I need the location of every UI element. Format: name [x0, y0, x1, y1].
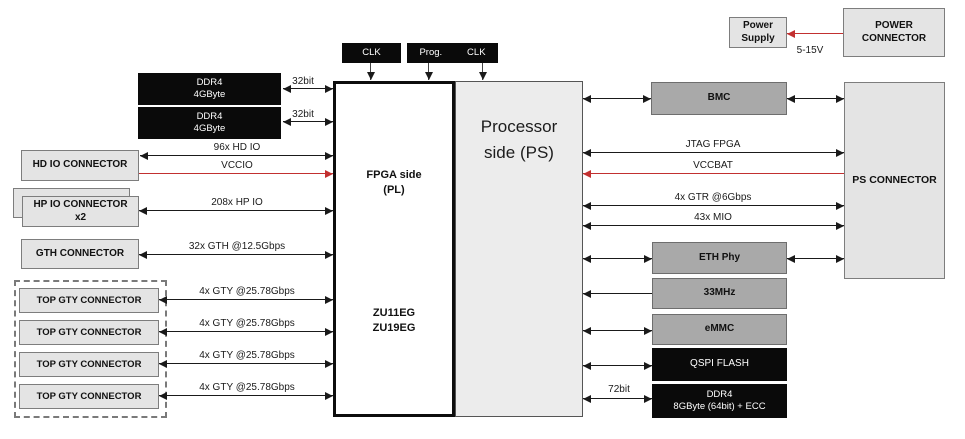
gty-arrow-2	[159, 331, 333, 332]
ddr4-pl-2-bus-label: 32bit	[292, 109, 314, 121]
gty-arrow-4	[159, 395, 333, 396]
fpga-chip-2: ZU19EG	[336, 321, 452, 336]
power-connector-box: POWER CONNECTOR	[843, 8, 945, 57]
bmc-right-arrow	[787, 98, 844, 99]
voltage-label: 5-15V	[797, 45, 824, 57]
gty-bus-label-4: 4x GTY @25.78Gbps	[199, 382, 295, 394]
prog-down-arrow	[428, 63, 429, 80]
top-gty-connector-box-1: TOP GTY CONNECTOR	[19, 288, 159, 313]
vccbat-bus-label: VCCBAT	[693, 160, 733, 172]
ddr4-ps-bus-label: 72bit	[608, 384, 630, 396]
gty-bus-label-3: 4x GTY @25.78Gbps	[199, 350, 295, 362]
fpga-chip-names: ZU11EG ZU19EG	[336, 306, 452, 336]
processor-side-block: Processor side (PS)	[455, 81, 583, 417]
gty-arrow-3	[159, 363, 333, 364]
ddr4-ps-line2: 8GByte (64bit) + ECC	[673, 401, 765, 413]
vccio-bus-label: VCCIO	[221, 160, 253, 172]
power-supply-line2: Supply	[741, 33, 774, 46]
gty-arrow-1	[159, 299, 333, 300]
eth-phy-label: ETH Phy	[699, 252, 740, 265]
ddr4-pl-1-line2: 4GByte	[194, 89, 226, 101]
clk2-down-arrow	[482, 63, 483, 80]
fpga-chip-1: ZU11EG	[336, 306, 452, 321]
gtr-arrow	[583, 205, 844, 206]
fpga-side-title-line1: FPGA side	[336, 168, 452, 183]
hd-io-bus-label: 96x HD IO	[214, 142, 261, 154]
clk1-down-arrow	[370, 63, 371, 80]
processor-side-title-line2: side (PS)	[456, 140, 582, 166]
top-gty-connector-3-label: TOP GTY CONNECTOR	[37, 359, 142, 371]
prog-label: Prog.	[419, 47, 442, 59]
hp-io-connector-label: HP IO CONNECTOR	[33, 199, 127, 212]
ddr4-pl-2-line2: 4GByte	[194, 123, 226, 135]
hp-io-connector-count: x2	[75, 212, 86, 225]
jtag-bus-label: JTAG FPGA	[686, 139, 741, 151]
top-gty-connector-box-2: TOP GTY CONNECTOR	[19, 320, 159, 345]
ps-connector-label: PS CONNECTOR	[852, 174, 936, 187]
ddr4-pl-1-bus-label: 32bit	[292, 76, 314, 88]
power-connector-line2: CONNECTOR	[862, 33, 926, 46]
bmc-left-arrow	[583, 98, 651, 99]
ddr4-ps-box: DDR4 8GByte (64bit) + ECC	[652, 384, 787, 418]
gth-bus-label: 32x GTH @12.5Gbps	[189, 241, 285, 253]
gty-bus-label-1: 4x GTY @25.78Gbps	[199, 286, 295, 298]
qspi-flash-label: QSPI FLASH	[690, 358, 749, 371]
emmc-label: eMMC	[705, 323, 734, 336]
hp-io-bus-label: 208x HP IO	[211, 197, 263, 209]
top-gty-connector-4-label: TOP GTY CONNECTOR	[37, 391, 142, 403]
gth-connector-box: GTH CONNECTOR	[21, 239, 139, 269]
fpga-side-title: FPGA side (PL)	[336, 168, 452, 198]
eth-phy-right-arrow	[787, 258, 844, 259]
gtr-bus-label: 4x GTR @6Gbps	[675, 192, 752, 204]
qspi-arrow	[583, 365, 652, 366]
top-gty-connector-2-label: TOP GTY CONNECTOR	[37, 327, 142, 339]
hd-io-connector-box: HD IO CONNECTOR	[21, 150, 139, 181]
hd-io-arrow	[140, 155, 333, 156]
mio-arrow	[583, 225, 844, 226]
gth-connector-label: GTH CONNECTOR	[36, 248, 124, 261]
gty-bus-label-2: 4x GTY @25.78Gbps	[199, 318, 295, 330]
gth-arrow	[139, 254, 333, 255]
bmc-box: BMC	[651, 82, 787, 115]
osc-33mhz-arrow	[583, 293, 652, 294]
processor-side-title-line1: Processor	[456, 114, 582, 140]
ddr4-ps-line1: DDR4	[707, 389, 733, 401]
ddr4-pl-2-line1: DDR4	[197, 111, 223, 123]
top-gty-connector-1-label: TOP GTY CONNECTOR	[37, 295, 142, 307]
ddr4-pl-box-2: DDR4 4GByte	[138, 107, 281, 139]
prog-clk-box: Prog. CLK	[407, 43, 498, 63]
vccio-arrow	[139, 173, 333, 174]
emmc-box: eMMC	[652, 314, 787, 345]
clk-box-2-label: CLK	[467, 47, 485, 59]
qspi-flash-box: QSPI FLASH	[652, 348, 787, 381]
power-supply-line1: Power	[743, 20, 773, 33]
emmc-arrow	[583, 330, 652, 331]
power-supply-box: Power Supply	[729, 17, 787, 48]
vccbat-arrow	[583, 173, 844, 174]
ddr4-pl-1-line1: DDR4	[197, 77, 223, 89]
hd-io-connector-label: HD IO CONNECTOR	[33, 159, 128, 172]
top-gty-connector-box-4: TOP GTY CONNECTOR	[19, 384, 159, 409]
bmc-label: BMC	[708, 92, 731, 105]
ddr4-ps-arrow	[583, 398, 652, 399]
power-connector-line1: POWER	[875, 20, 913, 33]
top-gty-connector-box-3: TOP GTY CONNECTOR	[19, 352, 159, 377]
eth-phy-left-arrow	[583, 258, 652, 259]
fpga-board-block-diagram: CLK Prog. CLK Power Supply POWER CONNECT…	[0, 0, 965, 439]
hp-io-arrow	[139, 210, 333, 211]
ps-connector-box: PS CONNECTOR	[844, 82, 945, 279]
osc-33mhz-box: 33MHz	[652, 278, 787, 309]
mio-bus-label: 43x MIO	[694, 212, 732, 224]
ddr4-pl-1-arrow	[283, 88, 333, 89]
fpga-side-block: FPGA side (PL) ZU11EG ZU19EG	[333, 81, 455, 417]
power-arrow	[787, 33, 843, 34]
clk-box-1-label: CLK	[362, 47, 380, 59]
hp-io-connector-box: HP IO CONNECTOR x2	[22, 196, 139, 227]
ddr4-pl-box-1: DDR4 4GByte	[138, 73, 281, 105]
ddr4-pl-2-arrow	[283, 121, 333, 122]
clk-box-1: CLK	[342, 43, 401, 63]
processor-side-title: Processor side (PS)	[456, 114, 582, 165]
fpga-side-title-line2: (PL)	[336, 183, 452, 198]
jtag-arrow	[583, 152, 844, 153]
eth-phy-box: ETH Phy	[652, 242, 787, 274]
osc-33mhz-label: 33MHz	[704, 287, 736, 300]
